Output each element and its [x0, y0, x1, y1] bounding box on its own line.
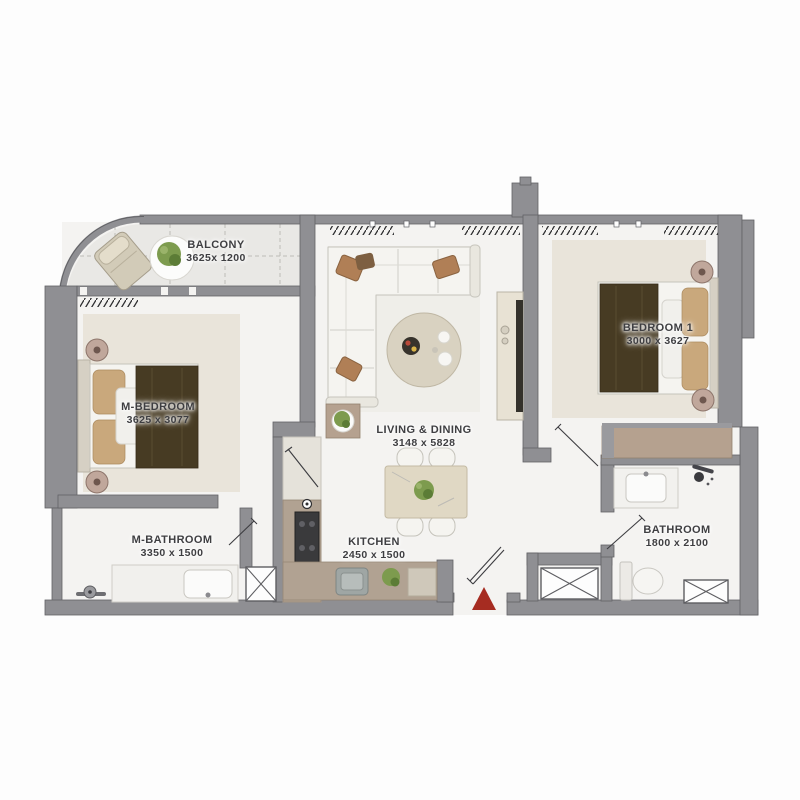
room-dims: 2450 x 1500 — [343, 549, 406, 563]
pillow — [682, 342, 708, 390]
m-bedroom-right-wall — [300, 215, 315, 427]
bottom-wall-left — [45, 600, 453, 615]
cutting-board — [408, 568, 436, 596]
top-wall — [140, 215, 740, 224]
bedside-lamp-icon — [692, 389, 714, 411]
room-label-bathroom: BATHROOM 1800 x 2100 — [643, 523, 710, 551]
room-name: BATHROOM — [643, 523, 710, 537]
room-name: M-BEDROOM — [121, 400, 195, 414]
living-bedroom1-wall — [523, 215, 538, 455]
bedroom-1-furniture — [598, 261, 732, 458]
plant-icon — [157, 242, 181, 266]
stove — [295, 512, 319, 564]
curtain-icon — [462, 226, 520, 235]
room-label-living-dining: LIVING & DINING 3148 x 5828 — [376, 423, 471, 451]
m-bathroom-wall — [240, 508, 252, 568]
left-wall — [45, 286, 77, 508]
shaft-x-icon — [246, 567, 276, 601]
tv-console — [497, 292, 523, 420]
right-wall-lower — [740, 427, 758, 615]
room-name: KITCHEN — [343, 535, 406, 549]
shaft-x-icon — [541, 568, 598, 599]
room-label-bedroom-1: BEDROOM 1 3000 x 3627 — [623, 321, 693, 349]
room-name: BALCONY — [186, 238, 245, 252]
dining-chair — [397, 448, 423, 468]
room-label-kitchen: KITCHEN 2450 x 1500 — [343, 535, 406, 563]
sink — [626, 474, 666, 502]
floor-plan-drawing — [0, 0, 800, 800]
m-bedroom-bottom-wall — [58, 495, 218, 508]
curtain-icon — [542, 226, 598, 235]
coffee-table — [387, 313, 461, 387]
tv-icon — [516, 300, 523, 412]
room-label-balcony: BALCONY 3625x 1200 — [186, 238, 245, 266]
room-label-m-bathroom: M-BATHROOM 3350 x 1500 — [132, 533, 213, 561]
room-dims: 3000 x 3627 — [623, 335, 693, 349]
hob-knob-icon — [303, 500, 312, 509]
curtain-icon — [664, 226, 718, 235]
floor-plan-page: BALCONY 3625x 1200 M-BEDROOM 3625 x 3077… — [0, 0, 800, 800]
top-column — [512, 183, 538, 217]
headboard — [78, 360, 90, 472]
dining-chair — [429, 448, 455, 468]
room-dims: 3625 x 3077 — [121, 414, 195, 428]
bedside-lamp-icon — [86, 339, 108, 361]
right-wall-upper — [718, 215, 742, 427]
bedside-lamp-icon — [86, 471, 108, 493]
room-dims: 3350 x 1500 — [132, 547, 213, 561]
room-name: LIVING & DINING — [376, 423, 471, 437]
room-dims: 3148 x 5828 — [376, 437, 471, 451]
room-dims: 3625x 1200 — [186, 252, 245, 266]
dining-chair — [397, 516, 423, 536]
shaft-x-icon — [684, 580, 728, 603]
wardrobe — [602, 423, 732, 458]
room-label-m-bedroom: M-BEDROOM 3625 x 3077 — [121, 400, 195, 428]
curtain-icon — [330, 226, 394, 235]
side-table-plant — [326, 404, 360, 438]
room-name: BEDROOM 1 — [623, 321, 693, 335]
room-dims: 1800 x 2100 — [643, 537, 710, 551]
dining-chair — [429, 516, 455, 536]
curtain-icon — [80, 298, 138, 307]
room-name: M-BATHROOM — [132, 533, 213, 547]
bedside-lamp-icon — [691, 261, 713, 283]
bathroom-wall — [601, 462, 614, 512]
